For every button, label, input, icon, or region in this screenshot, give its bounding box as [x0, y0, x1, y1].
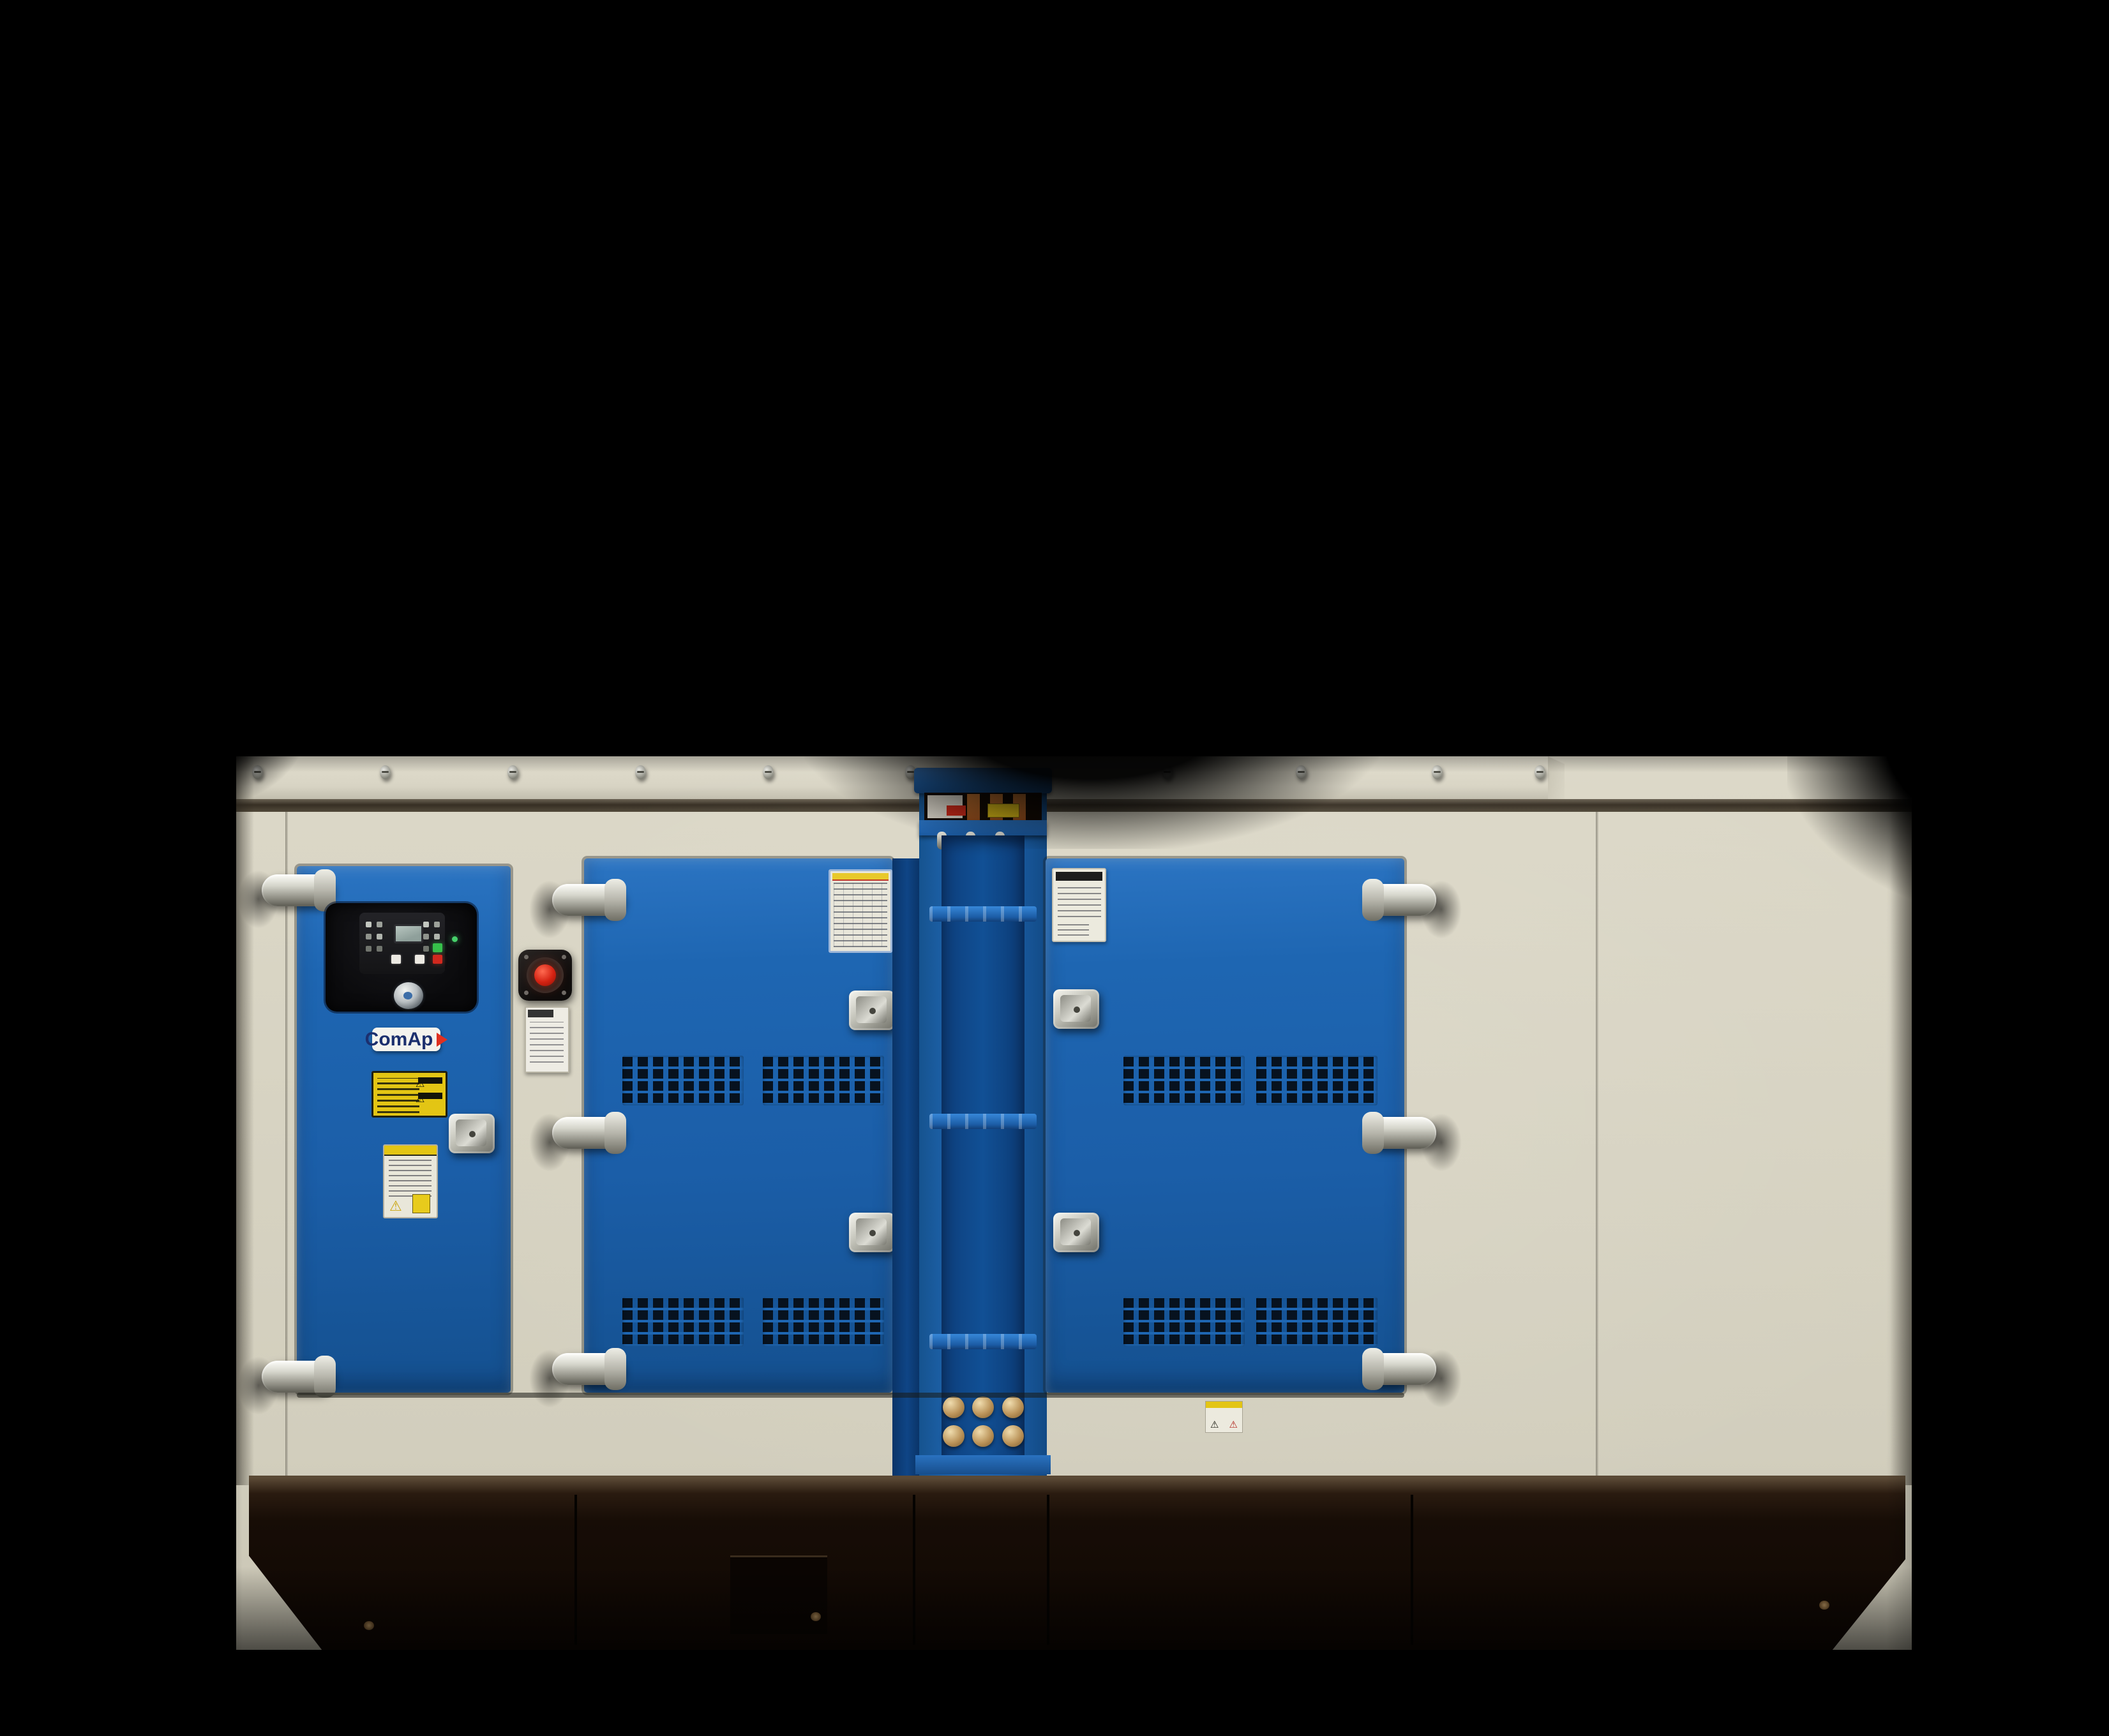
ventilation-grille — [763, 1056, 884, 1105]
roof-rail-end — [1548, 756, 1565, 799]
comap-logo-icon — [437, 1033, 447, 1047]
label-heading-bar — [528, 1010, 553, 1017]
ventilation-grille — [763, 1297, 884, 1347]
door-hinge-icon — [1365, 884, 1436, 916]
column-foot — [915, 1455, 1051, 1474]
roof-rail — [236, 756, 1548, 801]
engine-door-left — [584, 858, 892, 1393]
panel-seam — [1596, 812, 1598, 1476]
warning-mini-label — [987, 804, 1019, 818]
label-yellow-band — [832, 873, 889, 881]
terminal-bolt-icon — [972, 1425, 994, 1447]
label-text-lines — [1058, 886, 1101, 917]
roof-groove — [236, 799, 1912, 812]
enclosure-right-edge — [1890, 756, 1912, 1485]
column-rib — [929, 1334, 1037, 1349]
copper-busbar-icon — [967, 794, 980, 821]
comap-brand-label: ComAp — [372, 1028, 440, 1051]
label-heading-bar — [1056, 872, 1102, 881]
door-latch-icon — [1053, 1213, 1099, 1252]
base-seam — [1047, 1495, 1049, 1645]
door-latch-icon — [849, 991, 895, 1030]
door-bottom-shadow — [297, 1393, 1404, 1398]
warning-label-yellow: ⚠ ⚠ — [372, 1071, 447, 1118]
control-door: ComAp ⚠ ⚠ ⚠ — [297, 866, 511, 1393]
rail-screw-icon — [1296, 765, 1307, 779]
door-hinge-icon — [552, 1353, 624, 1385]
power-led-icon — [452, 936, 458, 942]
rail-screw-icon — [1162, 765, 1173, 779]
warning-triangle-icon: ⚠ — [416, 1079, 424, 1089]
controller-button — [415, 955, 424, 964]
door-latch-icon — [1053, 989, 1099, 1029]
column-channel — [942, 835, 1024, 1466]
ventilation-grille — [1256, 1056, 1377, 1105]
column-rib — [929, 906, 1037, 922]
label-text-lines — [377, 1078, 419, 1113]
ventilation-grille — [622, 1297, 744, 1347]
door-latch-icon — [449, 1114, 495, 1153]
column-cap — [914, 768, 1052, 793]
round-emblem-icon — [394, 982, 423, 1009]
door-hinge-icon — [262, 1361, 333, 1393]
base-skid — [249, 1476, 1905, 1650]
busbar-opening — [924, 793, 1042, 821]
label-text-lines — [1058, 923, 1089, 936]
rail-screw-icon — [1535, 765, 1545, 779]
base-pocket — [730, 1555, 827, 1634]
photo-scene: ComAp ⚠ ⚠ ⚠ — [0, 0, 2109, 1736]
label-yellow-block — [412, 1194, 430, 1213]
base-reflection — [811, 1612, 821, 1621]
comap-brand-text: ComAp — [365, 1029, 433, 1051]
emergency-stop-button — [518, 950, 572, 1001]
ventilation-grille — [1123, 1056, 1245, 1105]
vignette-top — [0, 0, 2109, 775]
rail-screw-icon — [380, 765, 391, 779]
vignette-right — [1886, 734, 2109, 1704]
ventilation-grille — [622, 1056, 744, 1105]
estop-corner-screws — [524, 955, 529, 959]
warning-triangle-icon: ⚠ — [389, 1199, 402, 1213]
door-hinge-icon — [262, 874, 333, 906]
rail-screw-icon — [1432, 765, 1443, 779]
warning-triangle-icon: ⚠ — [416, 1095, 424, 1105]
ventilation-grille — [1256, 1297, 1377, 1347]
label-yellow-band — [384, 1146, 437, 1156]
door-hinge-icon — [1365, 1353, 1436, 1385]
rail-screw-icon — [635, 765, 646, 779]
base-seam — [1411, 1495, 1413, 1645]
danger-mini-label — [947, 805, 966, 816]
cable-connection-column: ⚠ ⚠ — [919, 768, 1047, 1485]
precautions-label — [1052, 868, 1106, 942]
controller-start-button — [433, 943, 442, 952]
generator-set: ComAp ⚠ ⚠ ⚠ — [236, 756, 1912, 1650]
controller-stop-button — [433, 955, 442, 964]
warning-label-white: ⚠ — [383, 1144, 438, 1218]
label-text-lines — [530, 1022, 564, 1063]
column-rib — [929, 1114, 1037, 1129]
base-reflection — [364, 1621, 374, 1630]
rail-screw-icon — [507, 765, 518, 779]
strip-warning-label: ⚠ ⚠ — [1205, 1401, 1243, 1433]
base-seam — [574, 1495, 577, 1645]
label-yellow-band — [1206, 1402, 1242, 1408]
vignette-left — [121, 734, 243, 1704]
rail-screw-icon — [763, 765, 774, 779]
terminal-bolt-icon — [943, 1425, 964, 1447]
photo-background: ComAp ⚠ ⚠ ⚠ — [0, 0, 2109, 1736]
controller-unit — [359, 913, 445, 974]
controller-keypad-right — [423, 922, 429, 927]
base-seam — [913, 1495, 915, 1645]
terminal-bolt-icon — [1002, 1396, 1024, 1418]
estop-red-button-icon — [534, 964, 556, 986]
label-text-lines — [389, 1160, 432, 1197]
label-table-grid — [834, 883, 887, 947]
controller-window — [326, 903, 477, 1012]
spec-label-pillar — [525, 1006, 569, 1073]
door-latch-icon — [849, 1213, 895, 1252]
terminal-bolt-icon — [972, 1396, 994, 1418]
engine-door-right — [1046, 858, 1404, 1393]
terminal-bolt-icon — [1002, 1425, 1024, 1447]
door-hinge-icon — [552, 1117, 624, 1149]
column-recess-gap — [892, 858, 919, 1485]
controller-keypad-left — [366, 922, 372, 927]
controller-button — [391, 955, 401, 964]
warning-triangle-icon: ⚠ — [1229, 1420, 1238, 1430]
spec-table-label — [829, 869, 892, 953]
warning-triangle-icon: ⚠ — [1210, 1420, 1219, 1430]
door-hinge-icon — [552, 884, 624, 916]
controller-display — [394, 924, 423, 943]
terminal-bolt-icon — [943, 1396, 964, 1418]
door-hinge-icon — [1365, 1117, 1436, 1149]
base-reflection — [1819, 1601, 1829, 1610]
ventilation-grille — [1123, 1297, 1245, 1347]
